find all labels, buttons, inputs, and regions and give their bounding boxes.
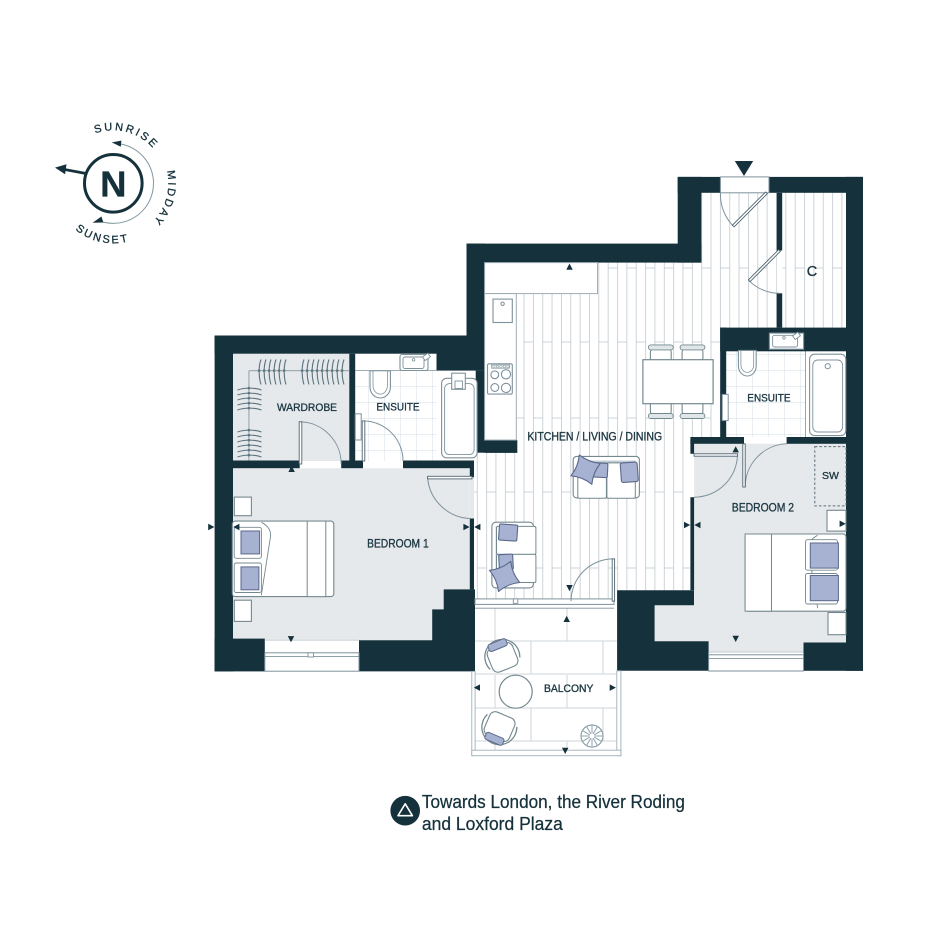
svg-text:KITCHEN / LIVING / DINING: KITCHEN / LIVING / DINING [527, 432, 662, 444]
svg-text:Towards London, the River Rodi: Towards London, the River Roding [422, 791, 685, 812]
svg-text:MIDDAY: MIDDAY [150, 170, 178, 229]
svg-text:N: N [100, 163, 126, 204]
svg-text:BEDROOM 2: BEDROOM 2 [732, 502, 794, 514]
svg-text:WARDROBE: WARDROBE [277, 402, 337, 414]
svg-text:ENSUITE: ENSUITE [376, 401, 419, 413]
svg-text:BALCONY: BALCONY [544, 683, 594, 695]
svg-text:BEDROOM 1: BEDROOM 1 [367, 539, 429, 551]
svg-text:ENSUITE: ENSUITE [747, 392, 790, 404]
svg-text:C: C [807, 264, 817, 280]
svg-text:SUNRISE: SUNRISE [93, 121, 161, 152]
svg-text:SW: SW [822, 470, 839, 482]
svg-text:SUNSET: SUNSET [73, 222, 130, 246]
svg-text:and Loxford Plaza: and Loxford Plaza [422, 813, 563, 834]
